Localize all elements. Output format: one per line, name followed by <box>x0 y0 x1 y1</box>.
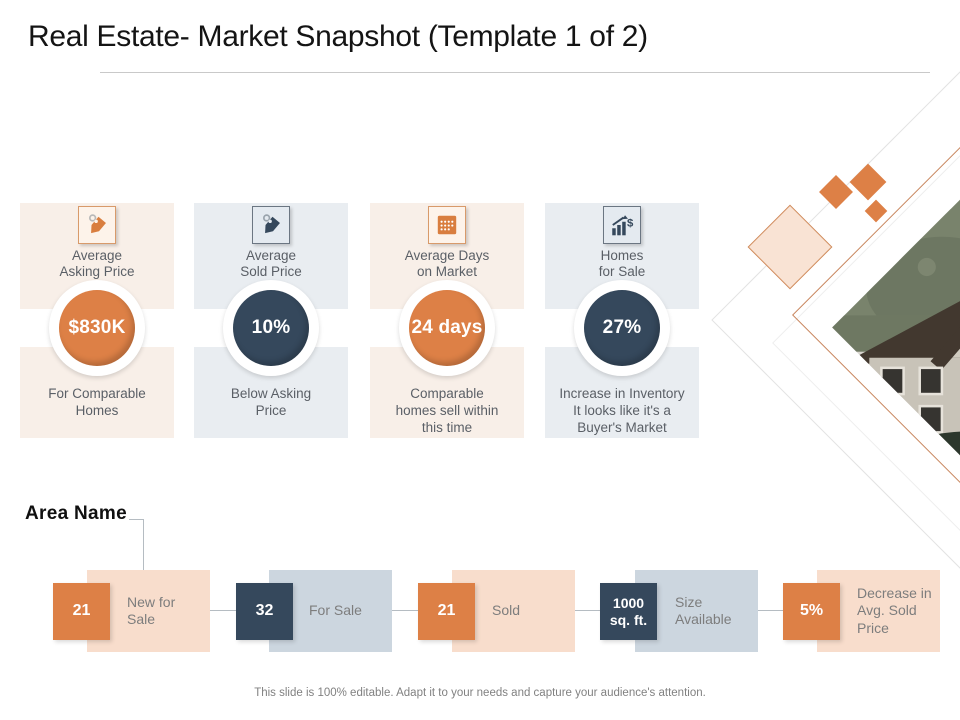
stat-value: 32 <box>236 583 293 640</box>
title-divider <box>100 72 930 73</box>
stat-card-homes-for-sale: $ Homes for Sale 27% Increase in Invento… <box>545 203 699 438</box>
stat-value: 5% <box>783 583 840 640</box>
area-name-label: Area Name <box>25 503 127 525</box>
card-description: For Comparable Homes <box>23 386 171 420</box>
value-ring: 24 days <box>399 280 495 376</box>
icon-box <box>428 206 466 244</box>
card-label: Average Sold Price <box>194 248 348 281</box>
diamond-shape-icon <box>865 200 888 223</box>
diamond-outline-icon <box>792 117 960 513</box>
card-label: Homes for Sale <box>545 248 699 281</box>
card-description: Below Asking Price <box>197 386 345 420</box>
value-ring: 10% <box>223 280 319 376</box>
card-label: Average Days on Market <box>370 248 524 281</box>
svg-text:$: $ <box>627 218 634 230</box>
card-description: Comparable homes sell within this time <box>373 386 521 437</box>
stat-value: 21 <box>53 583 110 640</box>
diamond-shape-icon <box>819 175 853 209</box>
card-description: Increase in Inventory It looks like it's… <box>548 386 696 437</box>
slide: Real Estate- Market Snapshot (Template 1… <box>0 0 960 720</box>
growth-chart-icon: $ <box>609 212 635 238</box>
editable-note: This slide is 100% editable. Adapt it to… <box>0 687 960 699</box>
value-ring: 27% <box>574 280 670 376</box>
page-title: Real Estate- Market Snapshot (Template 1… <box>28 20 788 54</box>
stat-label: New for Sale <box>127 594 175 629</box>
stat-value: 21 <box>418 583 475 640</box>
connector-line <box>392 610 418 611</box>
stat-label: Size Available <box>675 594 732 629</box>
value-circle: 10% <box>233 290 309 366</box>
value-circle: 27% <box>584 290 660 366</box>
diamond-outline-icon <box>711 51 960 588</box>
icon-box: $ <box>603 206 641 244</box>
stat-label: Sold <box>492 602 520 620</box>
connector-line <box>210 610 236 611</box>
price-tag-icon <box>84 212 110 238</box>
connector-line <box>129 519 144 520</box>
diamond-shape-icon <box>748 205 833 290</box>
connector-line <box>143 519 144 570</box>
value-circle: $830K <box>59 290 135 366</box>
calendar-icon <box>434 212 460 238</box>
stat-label: Decrease in Avg. Sold Price <box>857 585 932 638</box>
stat-value: 1000 sq. ft. <box>600 583 657 640</box>
stat-label: For Sale <box>309 602 362 620</box>
stat-card-asking-price: Average Asking Price $830K For Comparabl… <box>20 203 174 438</box>
diamond-shape-icon <box>850 164 887 201</box>
stat-card-days-on-market: Average Days on Market 24 days Comparabl… <box>370 203 524 438</box>
house-photo <box>832 147 960 508</box>
value-ring: $830K <box>49 280 145 376</box>
card-label: Average Asking Price <box>20 248 174 281</box>
connector-line <box>758 610 783 611</box>
connector-line <box>575 610 600 611</box>
icon-box <box>78 206 116 244</box>
value-circle: 24 days <box>409 290 485 366</box>
icon-box <box>252 206 290 244</box>
diamond-outline-icon <box>772 152 960 534</box>
price-tag-icon <box>258 212 284 238</box>
stat-card-sold-price: Average Sold Price 10% Below Asking Pric… <box>194 203 348 438</box>
